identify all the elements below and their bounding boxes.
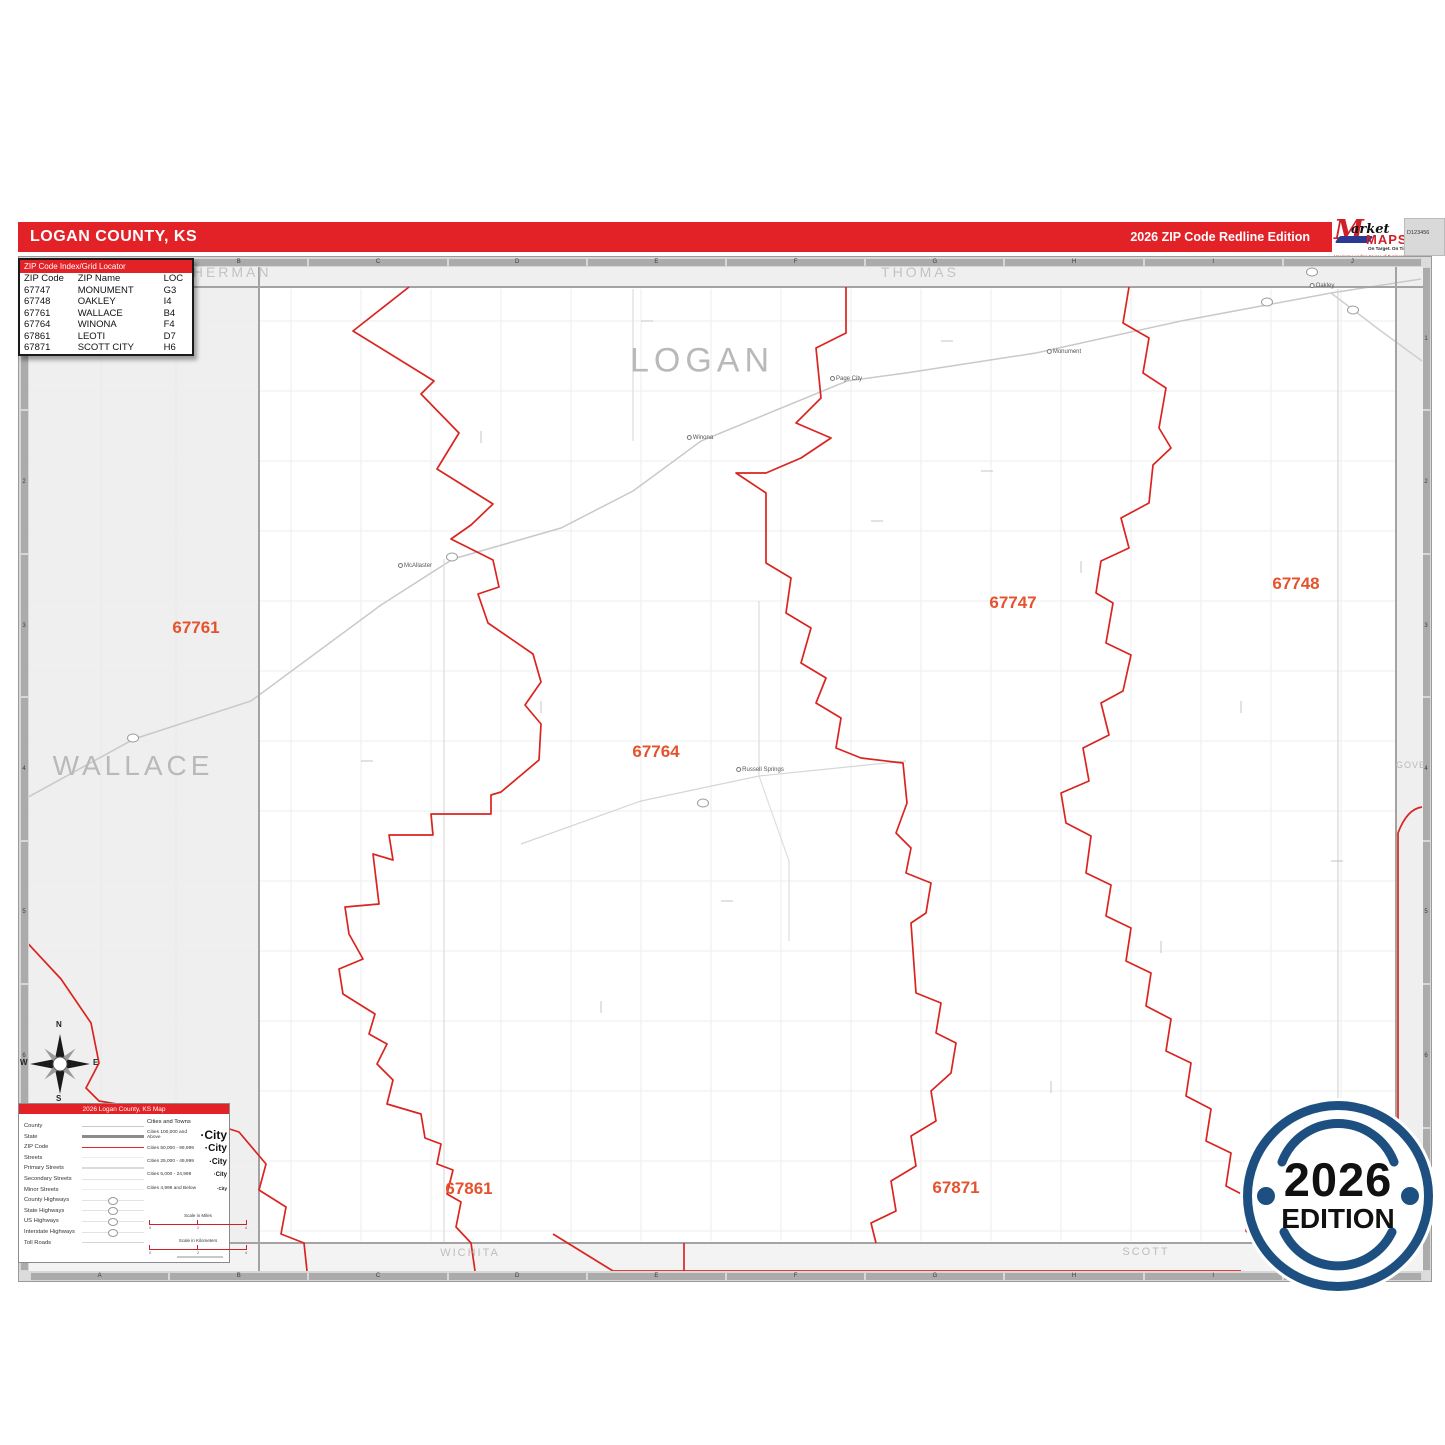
scale-miles-bar (149, 1219, 247, 1225)
legend-item: US Highways (24, 1217, 144, 1225)
legend-line-sample (82, 1210, 144, 1211)
index-col-header: ZIP Name (78, 273, 164, 285)
legend-item-label: Streets (24, 1155, 82, 1161)
legend-line-sample (82, 1242, 144, 1243)
page-title: LOGAN COUNTY, KS (18, 228, 197, 246)
grid-number: 4 (21, 698, 28, 839)
legend-city-item: Cities 50,000 - 99,999·City (147, 1143, 227, 1154)
grid-letter: C (309, 259, 446, 266)
grid-number: 3 (1423, 555, 1430, 696)
compass-rose: N S W E (20, 1022, 100, 1104)
legend-shield-icon (108, 1207, 118, 1215)
index-cell: 67871 (24, 342, 78, 354)
legend-item: State (24, 1133, 144, 1141)
index-cell: I4 (164, 296, 188, 308)
grid-letter: J (1284, 259, 1421, 266)
zip-index-title: ZIP Code Index/Grid Locator (20, 260, 192, 273)
grid-letter: G (866, 259, 1003, 266)
legend-item: County Highways (24, 1196, 144, 1204)
grid-letter: I (1145, 259, 1282, 266)
index-cell: 67748 (24, 296, 78, 308)
grid-letter: G (866, 1273, 1003, 1280)
legend-item-label: ZIP Code (24, 1144, 82, 1150)
legend-city-label: Cities 4,999 and Below (147, 1186, 196, 1191)
index-cell: WALLACE (78, 308, 164, 320)
scale-tick-label: 2 (197, 1226, 199, 1230)
legend-body: Scale in Miles 024 Scale in Kilometers 0… (19, 1114, 229, 1261)
legend-city-item: Cities 25,000 - 49,999·City (147, 1157, 227, 1166)
scale-km-bar (149, 1244, 247, 1250)
index-cell: SCOTT CITY (78, 342, 164, 354)
legend-item-label: Secondary Streets (24, 1176, 82, 1182)
grid-letter: E (588, 1273, 725, 1280)
legend-item: County (24, 1122, 144, 1130)
legend-title: 2026 Logan County, KS Map (19, 1104, 229, 1114)
index-cell: 67861 (24, 331, 78, 343)
index-cell: B4 (164, 308, 188, 320)
grid-letter: D (449, 259, 586, 266)
legend-item-label: Primary Streets (24, 1165, 82, 1171)
scale-tick-label: 4 (245, 1226, 247, 1230)
scale-tick-label: 2 (197, 1251, 199, 1255)
legend-item-label: State Highways (24, 1208, 82, 1214)
legend-box: 2026 Logan County, KS Map Scale in Miles… (18, 1103, 230, 1263)
table-row: 67861LEOTID7 (20, 331, 192, 343)
scale-tick-label: 0 (149, 1251, 151, 1255)
legend-item: Interstate Highways (24, 1228, 144, 1236)
legend-line-sample (82, 1126, 144, 1127)
grid-letter: A (31, 1273, 168, 1280)
badge-year: 2026 (1284, 1157, 1393, 1203)
grid-number: 4 (1423, 698, 1430, 839)
legend-item-label: State (24, 1134, 82, 1140)
legend-city-label: Cities 25,000 - 49,999 (147, 1159, 194, 1164)
legend-city-label: Cities 100,000 and Above (147, 1130, 200, 1140)
index-cell: D7 (164, 331, 188, 343)
logo-contact-box: D123456 (1404, 218, 1445, 256)
legend-line-sample (82, 1179, 144, 1180)
legend-item-label: US Highways (24, 1218, 82, 1224)
legend-city-label: Cities 5,000 - 24,999 (147, 1172, 191, 1177)
map-frame: ABCDEFGHIJ ABCDEFGHIJ 1234567 1234567 (18, 256, 1432, 1282)
compass-w: W (20, 1058, 28, 1067)
legend-city-sample: ·City (209, 1157, 227, 1166)
table-row: 67748OAKLEYI4 (20, 296, 192, 308)
zip-index-table: ZIP Code Index/Grid Locator ZIP CodeZIP … (18, 258, 194, 356)
legend-city-item: Cities 100,000 and Above·City (147, 1128, 227, 1142)
legend-shield-icon (108, 1229, 118, 1237)
legend-item: State Highways (24, 1207, 144, 1215)
legend-line-sample (82, 1200, 144, 1201)
grid-letter: B (170, 1273, 307, 1280)
legend-city-sample: ·City (205, 1143, 227, 1154)
legend-item-label: County Highways (24, 1197, 82, 1203)
map-poster: LOGAN COUNTY, KS 2026 ZIP Code Redline E… (0, 0, 1445, 1445)
grid-letter: F (727, 1273, 864, 1280)
grid-letter: F (727, 259, 864, 266)
legend-city-label: Cities 50,000 - 99,999 (147, 1146, 194, 1151)
scale-miles: Scale in Miles 024 (149, 1213, 247, 1230)
scale-miles-label: Scale in Miles (149, 1213, 247, 1218)
legend-city-sample: ·City (200, 1128, 227, 1142)
legend-line-sample (82, 1232, 144, 1233)
legend-item-label: Toll Roads (24, 1240, 82, 1246)
grid-number: 2 (1423, 411, 1430, 552)
index-col-header: ZIP Code (24, 273, 78, 285)
grid-letter: H (1005, 259, 1142, 266)
legend-city-sample: ·City (217, 1186, 227, 1191)
index-cell: LEOTI (78, 331, 164, 343)
edition-badge: 2026 EDITION (1243, 1101, 1433, 1291)
grid-number: 5 (1423, 842, 1430, 983)
compass-e: E (93, 1058, 98, 1067)
grid-ruler-bottom: ABCDEFGHIJ (30, 1271, 1422, 1281)
legend-item: Toll Roads (24, 1239, 144, 1247)
legend-line-sample (82, 1147, 144, 1148)
table-row: 67761WALLACEB4 (20, 308, 192, 320)
compass-icon (20, 1022, 100, 1104)
legend-shield-icon (108, 1218, 118, 1226)
index-col-header: LOC (164, 273, 188, 285)
grid-number: 1 (1423, 268, 1430, 409)
legend-fineprint (177, 1256, 223, 1259)
table-row: 67764WINONAF4 (20, 319, 192, 331)
legend-line-sample (82, 1221, 144, 1222)
grid-number: 6 (1423, 985, 1430, 1126)
table-row: 67871SCOTT CITYH6 (20, 342, 192, 354)
logo-maps-text: MAPS (1366, 232, 1408, 247)
map-canvas (29, 267, 1423, 1271)
scale-tick-label: 0 (149, 1226, 151, 1230)
legend-city-sample: ·City (214, 1172, 227, 1178)
legend-shield-icon (108, 1197, 118, 1205)
product-code: D123456 (1407, 230, 1429, 236)
legend-line-sample (82, 1135, 144, 1138)
edition-subtitle: 2026 ZIP Code Redline Edition (1130, 230, 1332, 244)
index-cell: F4 (164, 319, 188, 331)
legend-item: Streets (24, 1154, 144, 1162)
header-bar: LOGAN COUNTY, KS 2026 ZIP Code Redline E… (18, 222, 1332, 252)
grid-letter: H (1005, 1273, 1142, 1280)
grid-ruler-top: ABCDEFGHIJ (30, 257, 1422, 267)
grid-letter: E (588, 259, 725, 266)
badge-label: EDITION (1281, 1203, 1395, 1235)
grid-letter: D (449, 1273, 586, 1280)
legend-city-item: Cities 4,999 and Below·City (147, 1186, 227, 1191)
index-cell: H6 (164, 342, 188, 354)
index-cell: G3 (164, 285, 188, 297)
index-cell: WINONA (78, 319, 164, 331)
legend-item: Secondary Streets (24, 1175, 144, 1183)
legend-item: Primary Streets (24, 1164, 144, 1172)
scale-km-label: Scale in Kilometers (149, 1238, 247, 1243)
index-cell: 67764 (24, 319, 78, 331)
legend-cities-header: Cities and Towns (147, 1119, 191, 1125)
legend-item-label: County (24, 1123, 82, 1129)
scale-tick-label: 4 (245, 1251, 247, 1255)
legend-item-label: Minor Streets (24, 1187, 82, 1193)
grid-number: 5 (21, 842, 28, 983)
legend-line-sample (82, 1189, 144, 1190)
legend-line-sample (82, 1157, 144, 1158)
zip-index-body: ZIP CodeZIP NameLOC67747MONUMENTG367748O… (20, 273, 192, 354)
legend-line-sample (82, 1167, 144, 1169)
index-cell: 67747 (24, 285, 78, 297)
legend-city-item: Cities 5,000 - 24,999·City (147, 1172, 227, 1178)
compass-s: S (56, 1094, 61, 1103)
grid-number: 2 (21, 411, 28, 552)
grid-number: 3 (21, 555, 28, 696)
index-cell: OAKLEY (78, 296, 164, 308)
scale-km: Scale in Kilometers 024 (149, 1238, 247, 1255)
index-header-row: ZIP CodeZIP NameLOC (20, 273, 192, 285)
legend-item-label: Interstate Highways (24, 1229, 82, 1235)
legend-item: ZIP Code (24, 1143, 144, 1151)
table-row: 67747MONUMENTG3 (20, 285, 192, 297)
grid-letter: C (309, 1273, 446, 1280)
index-cell: MONUMENT (78, 285, 164, 297)
index-cell: 67761 (24, 308, 78, 320)
map-graphics (29, 267, 1423, 1271)
compass-n: N (56, 1020, 62, 1029)
legend-item: Minor Streets (24, 1186, 144, 1194)
